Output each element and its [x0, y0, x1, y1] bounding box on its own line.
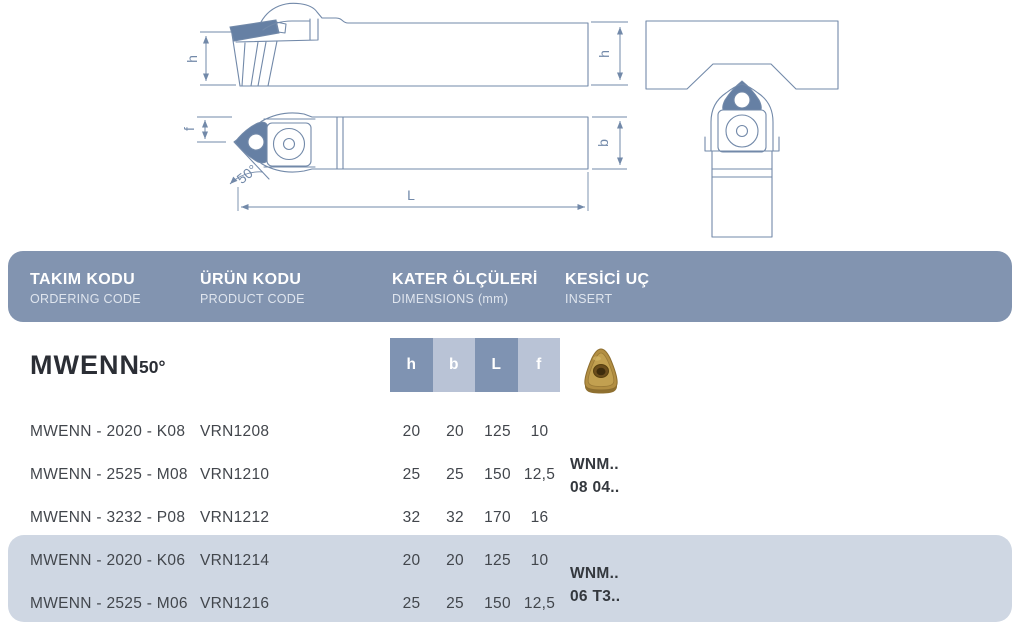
dim-h: 20: [390, 423, 433, 441]
insert-code-line: WNM..: [570, 562, 620, 585]
ordering-code: MWENN - 2020 - K06: [30, 552, 185, 570]
table-header-bar: TAKIM KODU ORDERING CODE ÜRÜN KODU PRODU…: [8, 251, 1012, 322]
insert-code-line: 08 04..: [570, 476, 620, 499]
dim-header-b: b: [433, 338, 476, 392]
table-row: MWENN - 2020 - K06 VRN1214 20 20 125 10: [0, 539, 1024, 582]
column-subtitle: INSERT: [565, 292, 650, 306]
column-title: ÜRÜN KODU: [200, 271, 305, 289]
dim-L: 125: [477, 423, 518, 441]
ordering-code: MWENN - 2525 - M06: [30, 595, 188, 613]
dim-label-b: b: [595, 139, 611, 147]
dimension-column-headers: h b L f: [390, 338, 560, 392]
dim-b: 20: [433, 423, 477, 441]
top-view-drawing: 50° f L b: [181, 113, 627, 211]
series-title: MWENN: [30, 350, 140, 381]
product-code: VRN1210: [200, 466, 269, 484]
dim-b: 25: [433, 466, 477, 484]
column-header-product-code: ÜRÜN KODU PRODUCT CODE: [200, 271, 305, 306]
technical-drawings: h h 50° f L b: [0, 0, 1024, 248]
dim-h: 25: [390, 466, 433, 484]
dim-header-f: f: [518, 338, 561, 392]
wnmg-trigon-gold-insert-icon: [576, 346, 626, 396]
table-row: MWENN - 2020 - K08 VRN1208 20 20 125 10: [0, 410, 1024, 453]
column-header-ordering-code: TAKIM KODU ORDERING CODE: [30, 271, 141, 306]
workpiece-outline: [646, 21, 838, 89]
product-code: VRN1214: [200, 552, 269, 570]
column-subtitle: PRODUCT CODE: [200, 292, 305, 306]
end-view-drawing: [646, 21, 838, 237]
insert-code-group: WNM.. 06 T3..: [570, 562, 620, 608]
column-title: KESİCİ UÇ: [565, 271, 650, 289]
dim-L: 150: [477, 595, 518, 613]
dim-h: 20: [390, 552, 433, 570]
dim-label-f: f: [181, 127, 197, 131]
dim-header-h: h: [390, 338, 433, 392]
ordering-code: MWENN - 3232 - P08: [30, 509, 185, 527]
insert-side-view: [230, 20, 279, 41]
column-header-insert: KESİCİ UÇ INSERT: [565, 271, 650, 306]
product-code: VRN1216: [200, 595, 269, 613]
dim-b: 20: [433, 552, 477, 570]
product-code: VRN1212: [200, 509, 269, 527]
catalog-page: h h 50° f L b: [0, 0, 1024, 628]
column-header-dimensions: KATER ÖLÇÜLERİ DIMENSIONS (mm): [392, 271, 538, 306]
dim-f: 12,5: [518, 595, 561, 613]
table-row: MWENN - 2525 - M08 VRN1210 25 25 150 12,…: [0, 453, 1024, 496]
dim-f: 12,5: [518, 466, 561, 484]
ordering-code: MWENN - 2020 - K08: [30, 423, 185, 441]
dim-f: 10: [518, 552, 561, 570]
side-view-drawing: h h: [184, 3, 628, 86]
column-subtitle: ORDERING CODE: [30, 292, 141, 306]
insert-code-line: 06 T3..: [570, 585, 620, 608]
dim-label-h-right: h: [596, 50, 612, 58]
dim-L: 125: [477, 552, 518, 570]
dim-b: 32: [433, 509, 477, 527]
insert-code-line: WNM..: [570, 453, 620, 476]
dim-label-h-left: h: [184, 55, 200, 63]
dim-L: 150: [477, 466, 518, 484]
dim-h: 32: [390, 509, 433, 527]
dim-f: 10: [518, 423, 561, 441]
ordering-code: MWENN - 2525 - M08: [30, 466, 188, 484]
insert-code-group: WNM.. 08 04..: [570, 453, 620, 499]
column-subtitle: DIMENSIONS (mm): [392, 292, 538, 306]
dim-f: 16: [518, 509, 561, 527]
column-title: KATER ÖLÇÜLERİ: [392, 271, 538, 289]
dim-L: 170: [477, 509, 518, 527]
dim-header-L: L: [475, 338, 518, 392]
dim-b: 25: [433, 595, 477, 613]
dim-label-L: L: [407, 187, 415, 203]
column-title: TAKIM KODU: [30, 271, 141, 289]
series-approach-angle: 50°: [139, 357, 165, 378]
table-row: MWENN - 2525 - M06 VRN1216 25 25 150 12,…: [0, 582, 1024, 625]
table-row: MWENN - 3232 - P08 VRN1212 32 32 170 16: [0, 496, 1024, 539]
product-code: VRN1208: [200, 423, 269, 441]
dim-h: 25: [390, 595, 433, 613]
